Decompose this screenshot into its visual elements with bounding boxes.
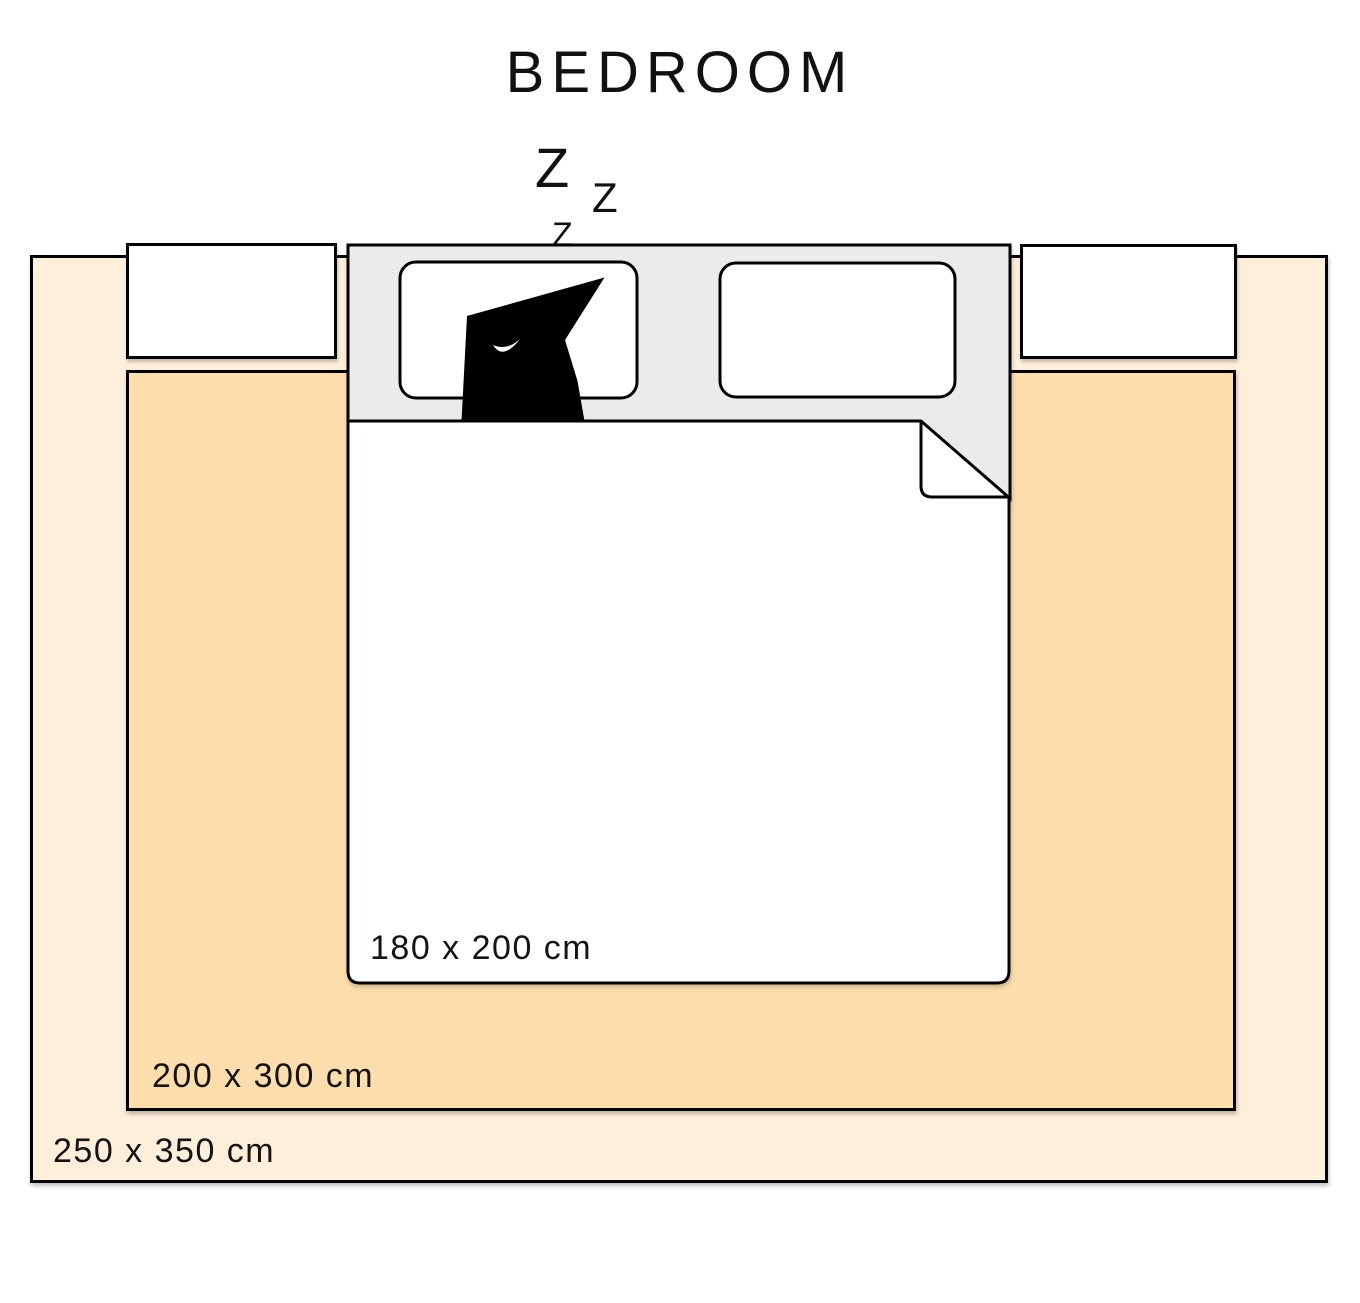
medium-rug-size-label: 200 x 300 cm — [152, 1059, 374, 1093]
bed-illustration — [0, 0, 1360, 1303]
pillow-right — [720, 263, 955, 397]
bed-size-label: 180 x 200 cm — [370, 931, 592, 965]
bedroom-rug-size-diagram: BEDROOM Z Z Z 180 x 200 cm 200 x 300 cm … — [0, 0, 1360, 1303]
duvet — [348, 421, 1009, 983]
large-rug-size-label: 250 x 350 cm — [53, 1134, 275, 1168]
